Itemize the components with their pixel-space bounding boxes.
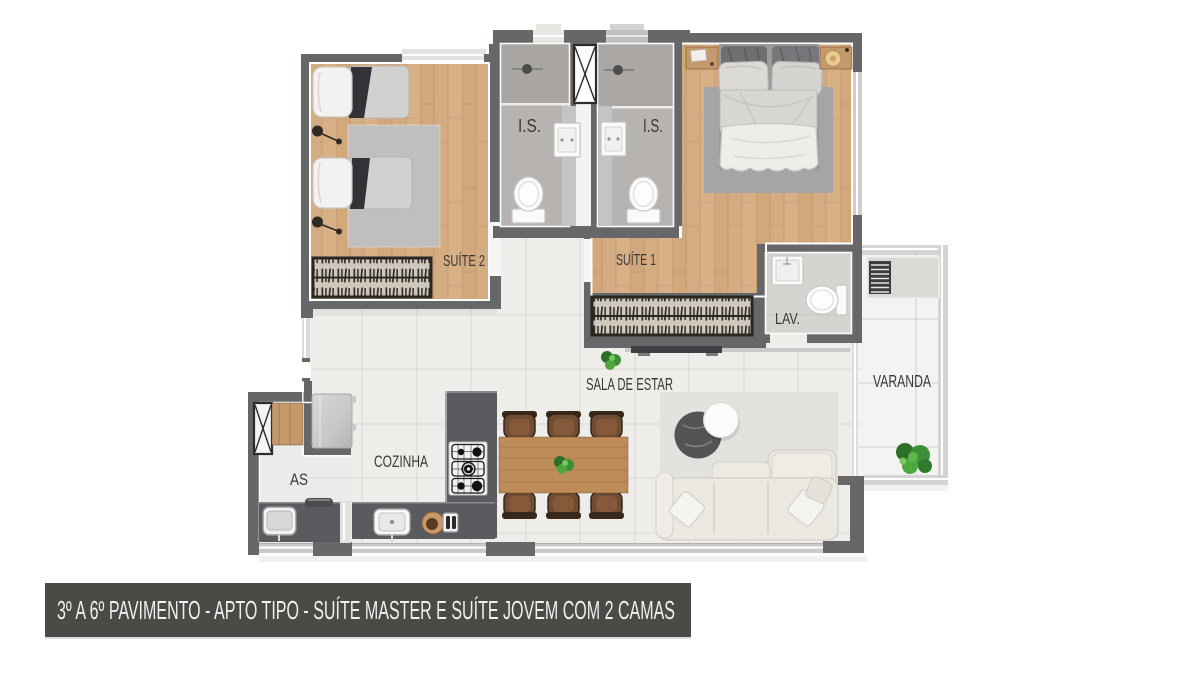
svg-text:AS: AS (290, 470, 308, 489)
svg-text:SUÍTE 1: SUÍTE 1 (616, 250, 656, 269)
svg-text:SUÍTE 2: SUÍTE 2 (443, 251, 485, 270)
svg-text:3º A 6º PAVIMENTO - APTO TIPO: 3º A 6º PAVIMENTO - APTO TIPO - SUÍTE MA… (57, 595, 675, 625)
svg-text:COZINHA: COZINHA (374, 452, 428, 471)
svg-text:LAV.: LAV. (775, 311, 800, 328)
svg-text:SALA DE ESTAR: SALA DE ESTAR (586, 374, 673, 394)
svg-text:I.S.: I.S. (643, 116, 663, 136)
svg-text:I.S.: I.S. (518, 116, 541, 136)
svg-text:VARANDA: VARANDA (873, 371, 931, 391)
